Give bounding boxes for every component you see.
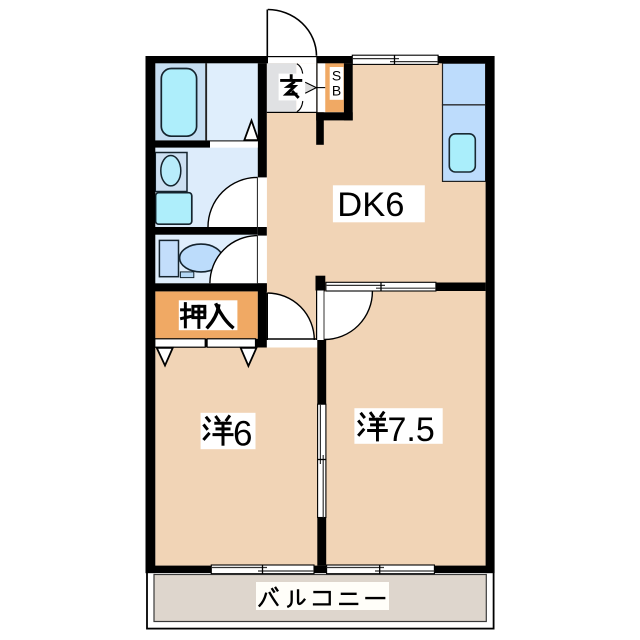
svg-text:B: B [332, 82, 341, 98]
svg-text:7.5: 7.5 [388, 411, 435, 449]
svg-text:S: S [332, 67, 341, 83]
svg-text:6: 6 [233, 415, 252, 454]
svg-text:DK6: DK6 [337, 186, 404, 224]
